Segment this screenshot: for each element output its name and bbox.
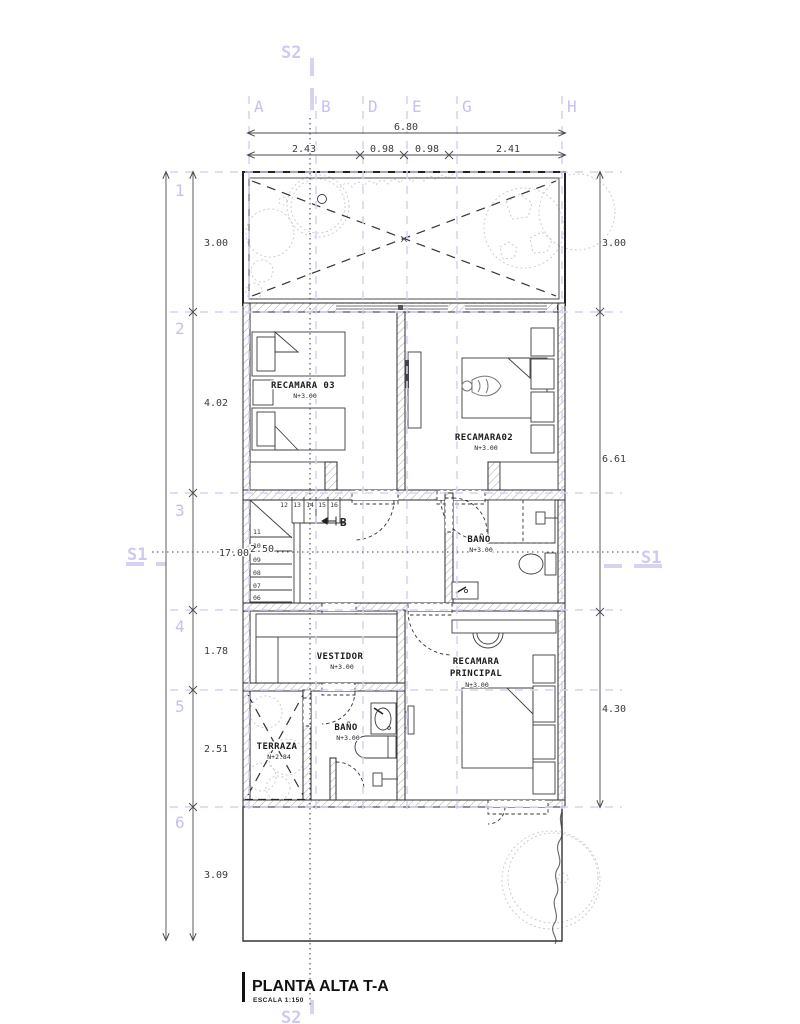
tv-icon: [408, 706, 414, 734]
door-swing: [336, 762, 364, 790]
stair-step-10: 10: [253, 542, 261, 550]
stair-direction-arrow: [322, 517, 336, 526]
room-label-recamara-principal-1: RECAMARA: [453, 657, 500, 667]
grid-row-label-3: 3: [175, 501, 185, 520]
dim-left-seg4: 1.78: [204, 646, 228, 657]
drawing-title: PLANTA ALTA T-A: [252, 978, 389, 995]
dim-top-seg1: 2.43: [292, 144, 316, 155]
grid-row-label-5: 5: [175, 697, 185, 716]
vestidor-room: [256, 614, 398, 685]
recamara03-furniture: [252, 332, 345, 450]
room-level-recamara-principal: N+3.00: [465, 681, 489, 689]
dim-right-seg2: 6.61: [602, 454, 626, 465]
room-label-recamara-principal-2: PRINCIPAL: [450, 669, 503, 679]
grid-col-label-g: G: [462, 97, 472, 116]
lot-boundary: [243, 807, 562, 941]
grid-col-label-a: A: [254, 97, 264, 116]
stair-step-06: 06: [253, 594, 261, 602]
bathtub-icon: [355, 736, 396, 758]
stair-step-15: 15: [318, 501, 326, 509]
stair-step-14: 14: [306, 501, 314, 509]
wall: [243, 490, 565, 500]
section-label-s1-left: S1: [127, 545, 147, 565]
dim-top-total: 6.80: [394, 122, 418, 133]
stair-railing: [294, 523, 300, 603]
room-label-recamara02: RECAMARA02: [455, 433, 513, 443]
grid-col-label-h: H: [567, 97, 577, 116]
dim-left-seg6: 3.09: [204, 870, 228, 881]
stair-direction-label: B: [340, 516, 347, 529]
closet: [500, 462, 558, 490]
toilet-icon: [519, 554, 543, 574]
room-level-vestidor: N+3.00: [330, 663, 354, 671]
stair-step-13: 13: [293, 501, 301, 509]
grid-col-label-b: B: [321, 97, 331, 116]
dim-left-seg1: 3.00: [204, 238, 228, 249]
room-label-vestidor: VESTIDOR: [317, 652, 364, 662]
door-swing: [354, 500, 394, 540]
section-label-s2-bottom: S2: [281, 1008, 301, 1024]
closet: [256, 614, 398, 637]
section-label-s1-right: S1: [641, 548, 661, 568]
floor-plan-sheet: A B D E G H 1 2 3 4 5 6 S2 S2 S1 S1 6.80…: [0, 0, 800, 1024]
room-level-bano-lower: N+3.00: [336, 734, 360, 742]
shower-head-icon: [373, 773, 382, 786]
door-swing: [322, 691, 355, 724]
closet: [256, 637, 278, 685]
window: [465, 304, 547, 311]
room-label-terraza: TERRAZA: [257, 742, 298, 752]
closet: [531, 328, 554, 356]
grid-row-label-2: 2: [175, 319, 185, 338]
section-label-s2-top: S2: [281, 43, 301, 63]
door-swing: [408, 611, 452, 655]
dim-top-seg3: 0.98: [415, 144, 439, 155]
building-plan: [243, 172, 565, 941]
desk: [452, 620, 556, 633]
stair-step-12: 12: [280, 501, 288, 509]
dim-left-seg2: 4.02: [204, 398, 228, 409]
title-block: PLANTA ALTA T-A ESCALA 1:150: [242, 972, 389, 1004]
closet: [250, 462, 325, 490]
grid-row-label-6: 6: [175, 813, 185, 832]
wall: [397, 312, 405, 490]
title-bar: [242, 972, 245, 1002]
stair-step-07: 07: [253, 582, 261, 590]
tv-console: [408, 352, 421, 428]
room-level-recamara02: N+3.00: [474, 444, 498, 452]
room-level-terraza: N+2.84: [267, 753, 291, 761]
grid-col-label-d: D: [368, 97, 378, 116]
recamara-principal-furniture: [405, 620, 556, 794]
stair-step-08: 08: [253, 569, 261, 577]
tree-trunk-icon: [318, 195, 327, 204]
dim-top-seg4: 2.41: [496, 144, 520, 155]
door-swing: [488, 807, 505, 824]
sink-icon: [452, 582, 478, 599]
wall: [397, 610, 405, 807]
bathroom-upper: [445, 493, 558, 605]
tree-icon: [484, 188, 564, 268]
floor-plan-drawing: A B D E G H 1 2 3 4 5 6 S2 S2 S1 S1 6.80…: [0, 0, 800, 1024]
nightstand: [533, 655, 555, 683]
room-level-recamara03: N+3.00: [293, 392, 317, 400]
grid-row-label-1: 1: [175, 181, 185, 200]
backyard-tree-icon: [508, 833, 598, 923]
grid-row-label-4: 4: [175, 617, 185, 636]
door-swing: [453, 498, 487, 532]
chair-icon: [473, 633, 503, 648]
shower-head-icon: [536, 512, 545, 524]
dim-left-total: 17.00: [219, 548, 249, 559]
stair-step-11: 11: [253, 528, 261, 536]
hedge-sketch: [340, 174, 460, 188]
grid-col-label-e: E: [412, 97, 422, 116]
stair-step-09: 09: [253, 556, 261, 564]
room-label-recamara03: RECAMARA 03: [271, 381, 335, 391]
dim-right-seg1: 3.00: [602, 238, 626, 249]
drawing-scale: ESCALA 1:150: [253, 997, 304, 1004]
dim-left-seg5: 2.51: [204, 744, 228, 755]
room-label-bano-lower: BAÑO: [334, 722, 357, 733]
bed-icon: [462, 688, 533, 768]
dim-top-seg2: 0.98: [370, 144, 394, 155]
room-label-bano-upper: BAÑO: [467, 534, 490, 545]
stair-step-16: 16: [330, 501, 338, 509]
room-level-bano-upper: N+3.00: [469, 546, 493, 554]
dim-right-seg3: 4.30: [602, 704, 626, 715]
window: [336, 304, 448, 311]
